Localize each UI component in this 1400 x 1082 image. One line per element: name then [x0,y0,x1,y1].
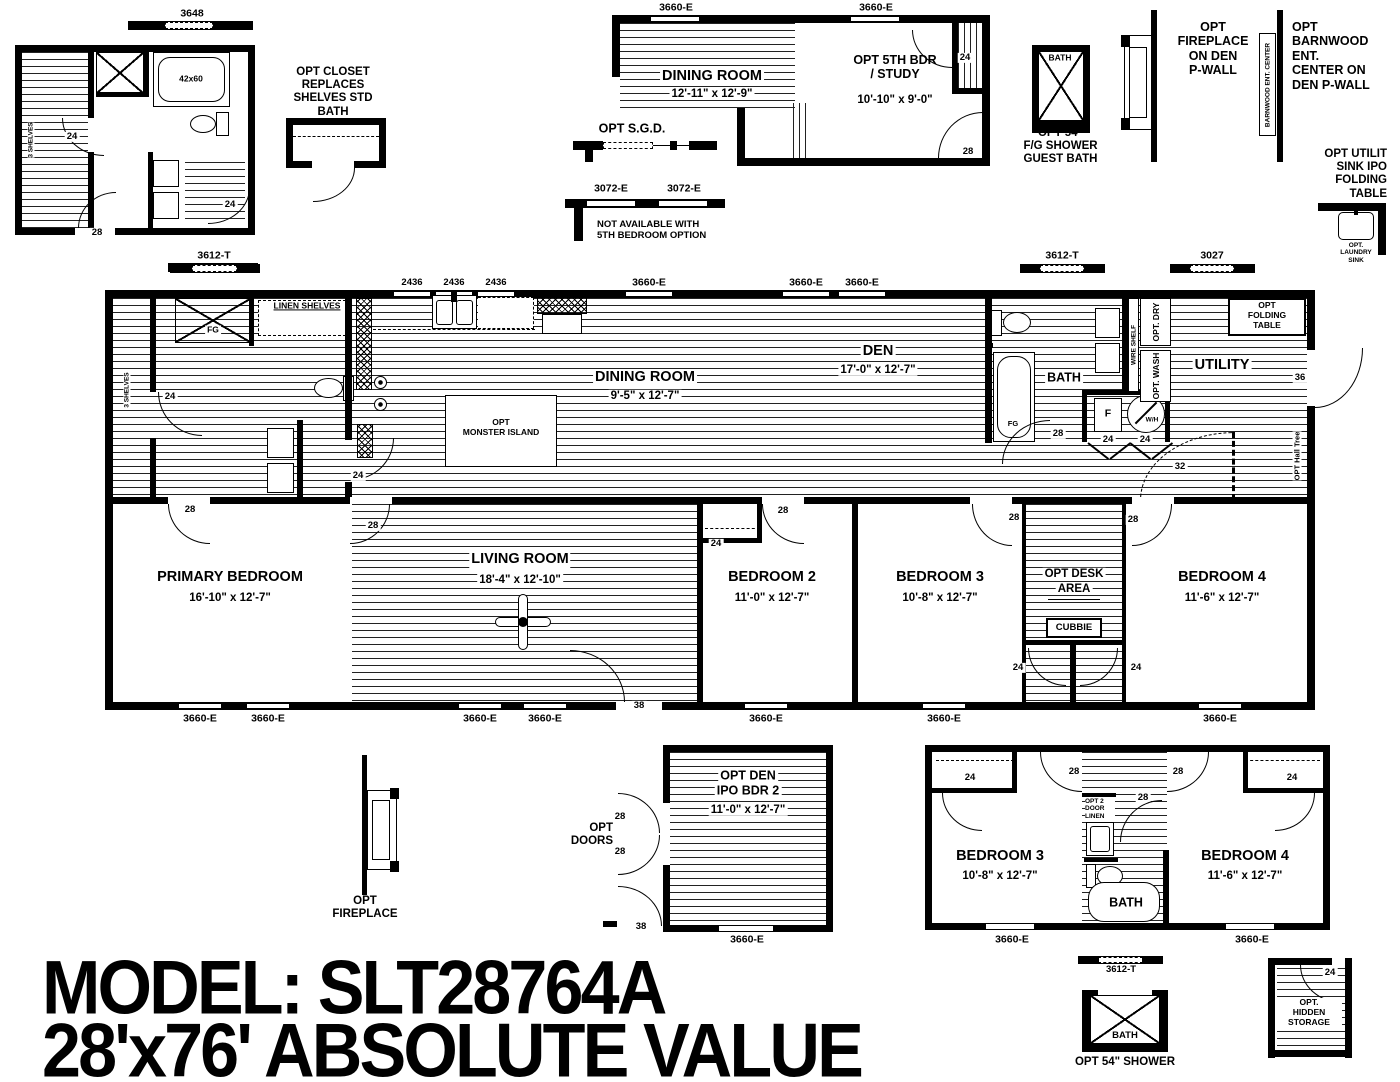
window-chip [1190,265,1234,272]
room-label: UTILITY [1193,358,1252,374]
door-label: 24 [1138,435,1153,445]
room-label: DEN [861,344,896,360]
caption-line: OPT [545,822,613,835]
sink-basin [436,300,453,325]
door-gap [1132,497,1174,504]
room-line: / STUDY [820,67,970,81]
door-arc [1315,348,1363,408]
door-label: 24 [65,132,80,142]
pantry-strip [357,424,373,458]
wall [1122,504,1126,702]
room-dim: 10'-8" x 12'-7" [960,870,1039,882]
window-chip [922,703,966,709]
closet-label: 24 [1285,773,1300,783]
room-dim: 11'-0" x 12'-7" [709,804,788,816]
room-label: BEDROOM 2 [726,570,818,586]
wall [697,504,703,702]
caption: OPT. HIDDEN STORAGE [1276,998,1342,1027]
room-dim: 11'-6" x 12'-7" [1183,592,1262,604]
window-chip [625,291,673,297]
door-label: 28 [1051,429,1066,439]
door-label: 24 [223,200,238,210]
caption: OPT BARNWOOD ENT. CENTER ON DEN P-WALL [1292,20,1392,92]
caption: OPT FIREPLACE ON DEN P-WALL [1158,20,1268,78]
caption: OPT 54" F/G SHOWER GUEST BATH [1008,127,1113,167]
wall [852,504,858,702]
hall-tree-label: OPT Hall Tree [1293,432,1302,481]
caption-line: CENTER ON [1292,63,1392,77]
door-label: 38 [634,922,649,932]
room-label: BEDROOM 3 [894,570,986,586]
wall [15,45,255,52]
wall [689,141,717,150]
caption-line: DOORS [545,835,613,848]
caption-line: OPT [1292,20,1392,34]
caption-line: SHELVES STD [283,92,383,105]
wall [925,745,1330,752]
caption-line: TABLE [1232,321,1302,331]
toilet-icon [1003,312,1031,333]
sink-icon [267,463,294,493]
shower-label: FG [205,325,221,334]
door-label: 28 [183,505,198,515]
room-dim: 17'-0" x 12'-7" [838,364,917,376]
wall [1070,645,1076,702]
wall [573,141,603,150]
room-label: OPT DEN [718,769,778,783]
window-chip [586,200,636,207]
wall [115,228,255,235]
fridge-vent [537,297,587,314]
caption-line: BATH [283,106,383,119]
wire-shelf-label: WIRE SHELF [1131,325,1138,365]
caption-line: GUEST BATH [1008,153,1113,166]
window-chip [1225,923,1275,930]
bath-label: BATH [1110,1031,1140,1041]
window-chip [718,925,774,932]
door-label: 28 [613,812,628,822]
barnwood-vlabel: BARNWOOD ENT. CENTER [1265,43,1272,127]
closet-label: 24 [963,773,978,783]
window-label: 3660-E [630,277,668,288]
caption-line: FOLDING [1295,174,1387,187]
window-chip [393,291,431,297]
fireplace-cap [1121,118,1130,130]
window-chip [458,703,502,709]
wall [1277,10,1283,162]
caption-line: MONSTER ISLAND [451,428,551,438]
dim-label: 3072-E [665,183,703,194]
room-label: IPO BDR 2 [715,784,782,798]
bath-label: BATH [1047,53,1074,62]
caption: OPT 54" SHOWER [1073,1056,1177,1068]
caption-line: P-WALL [1158,63,1268,77]
door-label: 28 [1007,513,1022,523]
room-dim: 9'-5" x 12'-7" [609,390,682,402]
toilet-tank [216,112,229,136]
window-chip [523,703,567,709]
caption-line: OPT. [1334,242,1378,249]
window-chip [650,16,700,22]
wall [1318,203,1386,211]
toilet-icon [190,115,216,133]
room-dim: 16'-10" x 12'-7" [187,592,273,604]
window-chip [192,265,237,272]
shelf-dash [293,136,379,137]
caption-line: FIREPLACE [1158,34,1268,48]
room-label: BATH [1107,896,1145,910]
wall [1082,390,1087,442]
washer-label: OPT. WASH [1151,353,1161,400]
caption-line: STORAGE [1276,1018,1342,1028]
caption-line: BARNWOOD [1292,34,1392,48]
sgd-panel [603,142,653,149]
door-arc [972,504,1012,546]
window-label: 3660-E [787,277,825,288]
window-chip [165,22,213,29]
caption-line: OPT 2 [1085,798,1115,805]
island-caption: OPT MONSTER ISLAND [451,418,551,438]
caption: OPT. LAUNDRY SINK [1334,242,1378,264]
door-label: 38 [632,701,647,711]
door-label: 28 [613,847,628,857]
wall [297,420,303,498]
door-arc [942,793,982,831]
sink-icon [1095,343,1120,373]
window-label: 3660-E [1201,713,1239,724]
wall [15,45,22,235]
window-label: 3660-E [925,713,963,724]
caption-line: OPT [1158,20,1268,34]
note: NOT AVAILABLE WITH 5TH BEDROOM OPTION [597,220,706,242]
door-label: 28 [1171,767,1186,777]
caption-line: LAUNDRY [1334,249,1378,256]
caption-line: OPT 54" [1008,127,1113,140]
wall [603,921,617,927]
window-chip [985,923,1035,930]
fireplace-cap [1121,35,1130,47]
wall [144,52,149,97]
opt-closet-caption: OPT CLOSET REPLACES SHELVES STD BATH [283,66,383,119]
wall [737,158,990,166]
window-chip [744,703,788,709]
fireplace-inner [372,800,390,860]
wall [1163,850,1169,923]
room-label: DINING ROOM [660,69,764,85]
window-chip [1098,957,1143,963]
wall [663,745,833,752]
dim-label: 2436 [441,278,466,288]
door-gap [350,497,392,504]
wall [248,45,255,235]
shower-icon [175,298,251,343]
wall [345,298,352,440]
underline [1048,599,1100,600]
linen-label: LINEN SHELVES [272,301,343,310]
window-label: 3660-E [728,934,766,945]
wh-label: W/H [1144,416,1161,423]
room-dim: 10'-8" x 12'-7" [900,592,979,604]
room-dim: 11'-0" x 12'-7" [733,592,812,604]
desk-label: AREA [1056,583,1093,595]
wall [1268,1050,1352,1057]
room-label: DINING ROOM [593,370,697,386]
dim-label: 3612-T [195,250,232,261]
toilet-tank [991,310,1002,336]
door-label: 24 [1011,663,1026,673]
sink-basin [456,300,473,325]
window-label: 3660-E [461,713,499,724]
window-chip [1198,703,1242,709]
model-title-line2: 28'x76' ABSOLUTE VALUE [42,1008,861,1082]
door-label: 24 [1101,435,1116,445]
closet-label: 24 [709,539,724,549]
wall [985,343,993,348]
wall [663,865,670,932]
wall [15,228,75,235]
room-label: LIVING ROOM [469,552,570,568]
window-chip [782,291,830,297]
dim-label: 3612-T [1043,250,1080,261]
closet-shelf [1245,760,1320,761]
window-chip [850,16,900,22]
window-label: 3660-E [1233,934,1271,945]
shelves-label: 3 SHELVES [124,372,131,407]
fireplace-cap [390,861,399,872]
caption-line: SINK [1334,257,1378,264]
door-gap [762,497,804,504]
wall [96,92,148,97]
wall [952,88,982,94]
fireplace-inner [1129,47,1147,118]
sink-basin [1090,826,1110,852]
tub-label: FG [1006,420,1020,428]
caption-line: OPT CLOSET [283,66,383,79]
door-label: 24 [958,53,973,63]
caption-line: DOOR [1085,805,1115,812]
range-burner-icon [374,376,387,389]
opt-sgd-label: OPT S.G.D. [597,122,668,136]
door-label: 28 [961,147,976,157]
wall [1268,958,1332,965]
toilet-icon [314,378,343,398]
wall [585,150,593,162]
room-label: BEDROOM 4 [1199,849,1291,865]
door-label: 36 [1293,373,1308,383]
caption-line: TABLE [1295,188,1387,201]
wall [1378,203,1386,255]
caption-line: ON DEN [1158,49,1268,63]
sink-icon [153,192,179,219]
caption-line: LINEN [1085,813,1115,820]
caption: OPT FIREPLACE [320,895,410,921]
caption-line: SINK IPO [1295,161,1387,174]
fridge [542,314,582,334]
door-label: 24 [351,471,366,481]
wall [1012,752,1017,790]
dim-label: 3072-E [592,183,630,194]
wall [286,118,386,125]
wall [1323,745,1330,930]
caption-line: F/G SHOWER [1008,140,1113,153]
dishwasher [478,297,534,329]
caption-line: REPLACES [283,79,383,92]
room-dim: 11'-6" x 12'-7" [1206,870,1285,882]
wall [1160,990,1168,1052]
door-label: 32 [1173,462,1188,472]
room-dim: 18'-4" x 12'-10" [477,574,563,586]
door-label: 24 [163,392,178,402]
dim-label: 3648 [178,8,205,19]
caption: OPT DOORS [545,822,613,848]
closet-shelf [705,528,760,529]
wall [982,15,990,165]
dryer-label: OPT. DRY [1151,303,1161,342]
wall [1082,990,1090,1052]
wall [150,298,156,392]
door-arc [313,168,355,202]
furnace-label: F [1103,408,1113,419]
room-label: BEDROOM 3 [954,849,1046,865]
wall [1243,752,1248,790]
wall [826,745,833,932]
window-label: 3660-E [657,2,695,13]
wall [663,745,670,803]
tub-label: 42x60 [177,74,205,83]
wall [249,298,254,346]
window-chip [178,703,222,709]
linen-caption: OPT 2 DOOR LINEN [1085,798,1115,820]
door-label: 24 [1129,663,1144,673]
wall [1082,1044,1168,1052]
door-label: 28 [1067,767,1082,777]
sink-icon [1095,308,1120,338]
floor-plan-sheet: 3648 3 SHELVES 42x60 24 24 28 3612-T OPT… [0,0,1400,1082]
window-label: 3660-E [993,934,1031,945]
dim-label: 3027 [1198,250,1225,261]
caption-line: OPT [320,895,410,908]
caption: OPT UTILIT SINK IPO FOLDING TABLE [1295,148,1387,201]
door-label: 28 [776,506,791,516]
window-chip [1040,265,1084,272]
wall [925,745,932,930]
wall [88,52,94,118]
room-dim: 12'-11" x 12'-9" [670,88,755,100]
note-line: 5TH BEDROOM OPTION [597,231,706,242]
window-chip [838,291,886,297]
pantry-strip [356,298,372,390]
room-label: BATH [1045,371,1083,385]
door-arc [1275,793,1315,831]
floor-strip [793,103,808,163]
wall [1084,858,1118,862]
caption-line: OPT UTILIT [1295,148,1387,161]
door-label: 28 [366,521,381,531]
dim-label: 2436 [483,278,508,288]
room-dim: 10'-10" x 9'-0" [855,94,934,106]
window-label: 3660-E [843,277,881,288]
sgd-arrow [670,141,677,150]
wall [574,199,583,241]
wall [1082,793,1116,797]
wall [105,290,1315,298]
window-chip [246,703,290,709]
door-label: 28 [90,228,105,238]
window-label: 3660-E [181,713,219,724]
window-chip [658,200,708,207]
shower-icon [96,52,144,94]
wall [1084,45,1090,133]
faucet [451,292,457,302]
door-label: 28 [1126,515,1141,525]
window-label: 3660-E [249,713,287,724]
laundry-sink-icon [1338,212,1374,240]
dim-label: 2436 [399,278,424,288]
closet-shelf [936,760,1014,761]
wall [354,161,386,168]
counter-dash [373,329,535,330]
wall [612,15,620,77]
desk-label: OPT DESK [1043,568,1106,580]
dim-label: 3612-T [1104,965,1138,975]
room-label: BEDROOM 4 [1176,570,1268,586]
wall [737,108,745,163]
door-label: 24 [1323,968,1338,978]
window-label: 3660-E [747,713,785,724]
caption-line: DEN P-WALL [1292,78,1392,92]
shelves-label: 3 SHELVES [28,122,35,157]
window-label: 3660-E [526,713,564,724]
fan-hub-icon [518,617,528,627]
cubbie-label: CUBBIE [1054,623,1094,633]
faucet [1354,208,1358,215]
caption-line: FIREPLACE [320,908,410,921]
fireplace-cap [390,788,399,799]
wall [150,438,156,498]
wall [286,161,312,168]
door-gap [1307,350,1315,406]
sink-icon [267,428,294,458]
room-label: PRIMARY BEDROOM [155,570,305,586]
wall [1268,958,1275,1058]
range-burner-icon [374,398,387,411]
wall [1345,958,1352,1058]
caption-line: ENT. [1292,49,1392,63]
window-label: 3660-E [857,2,895,13]
wall [757,504,762,540]
door-gap [970,497,1012,504]
sink-icon [153,160,179,187]
folding-table-caption: OPT FOLDING TABLE [1232,301,1302,330]
